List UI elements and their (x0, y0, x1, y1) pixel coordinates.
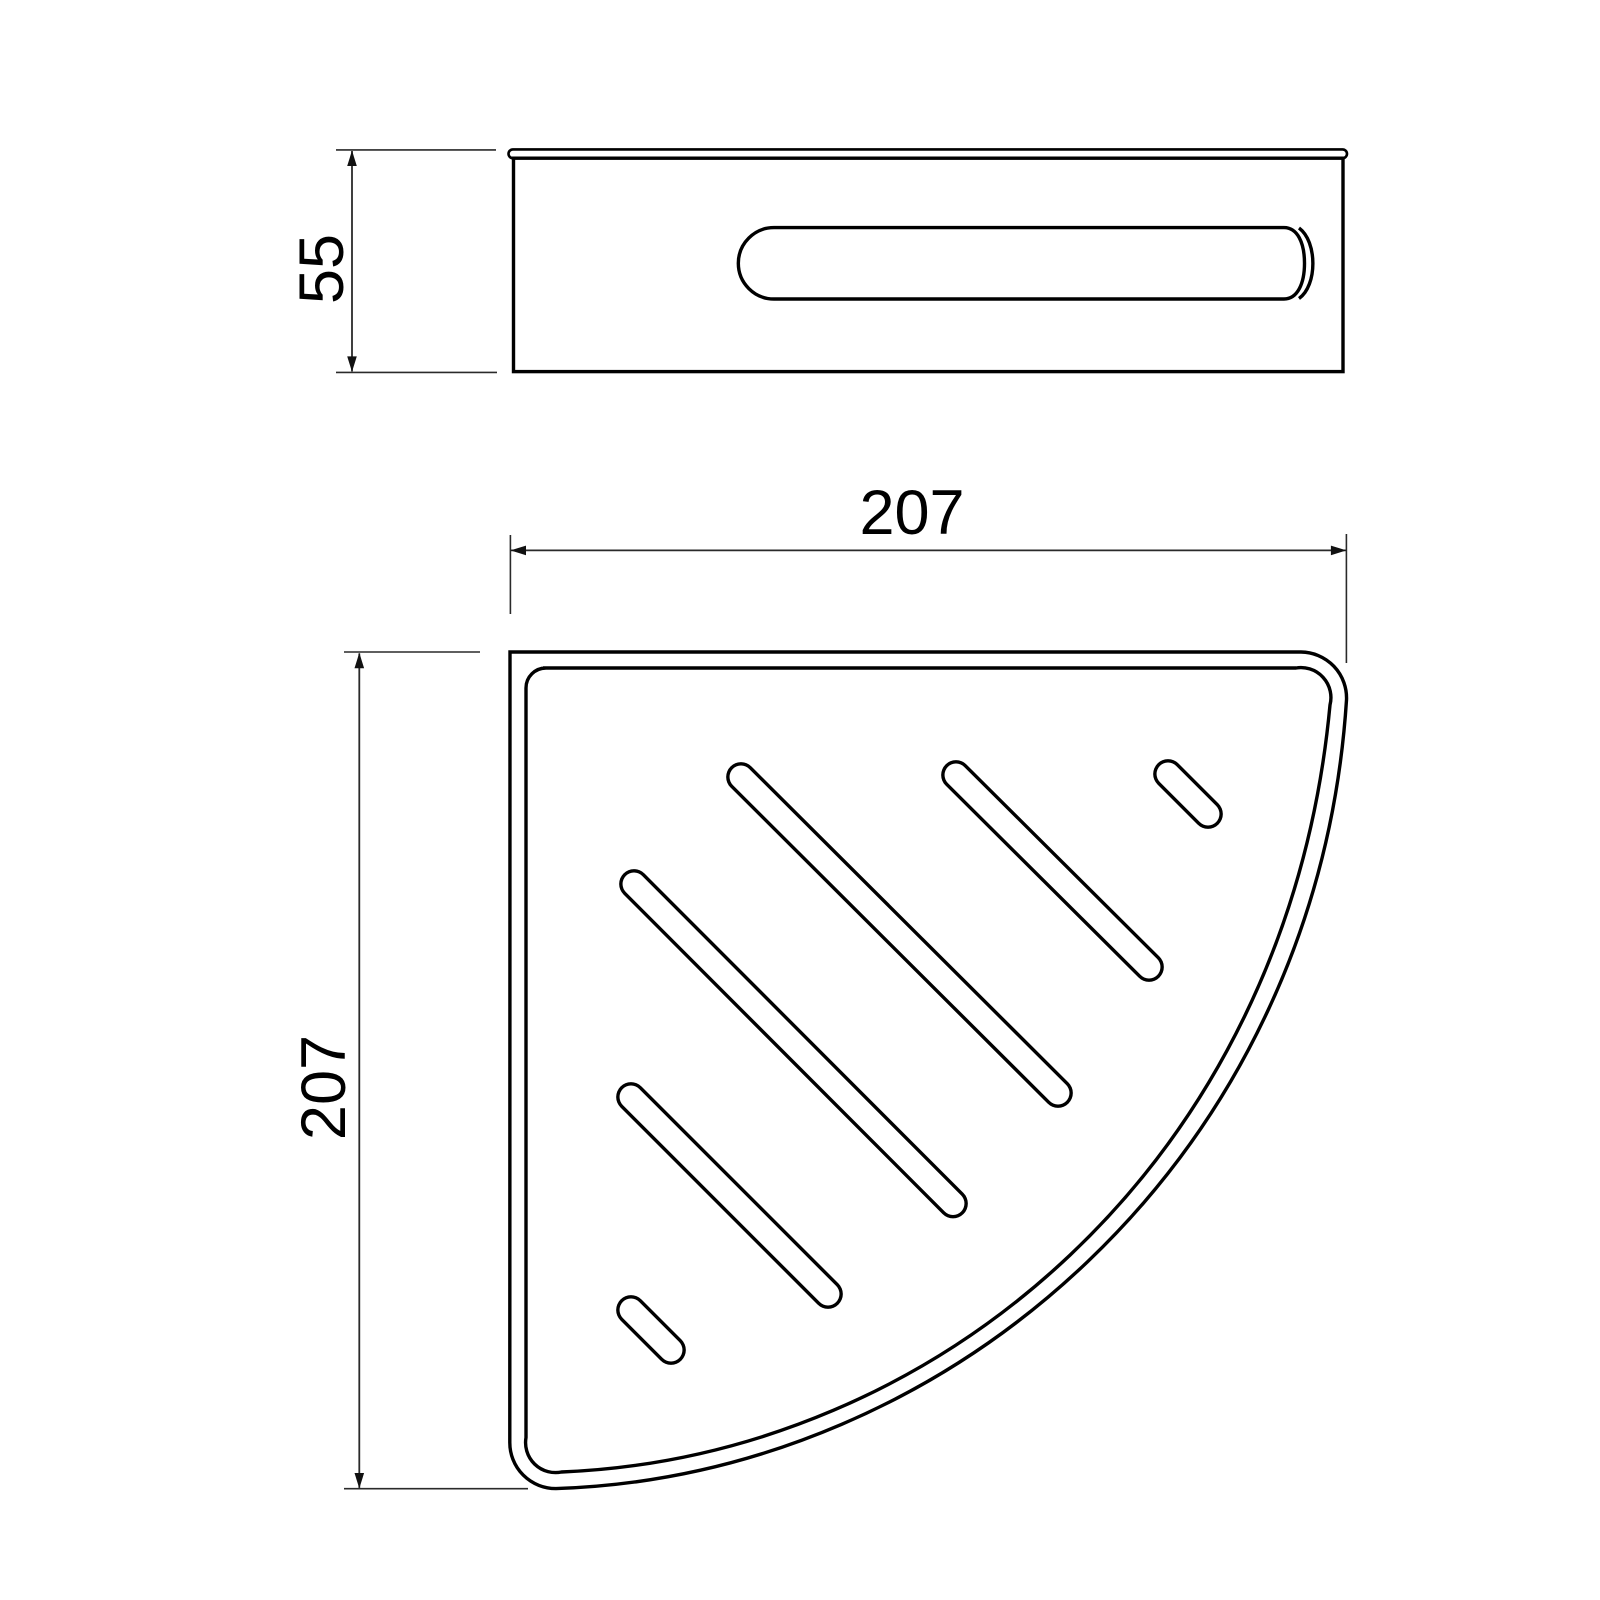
svg-text:207: 207 (859, 478, 964, 548)
svg-text:207: 207 (289, 1035, 359, 1140)
svg-text:55: 55 (287, 234, 357, 304)
